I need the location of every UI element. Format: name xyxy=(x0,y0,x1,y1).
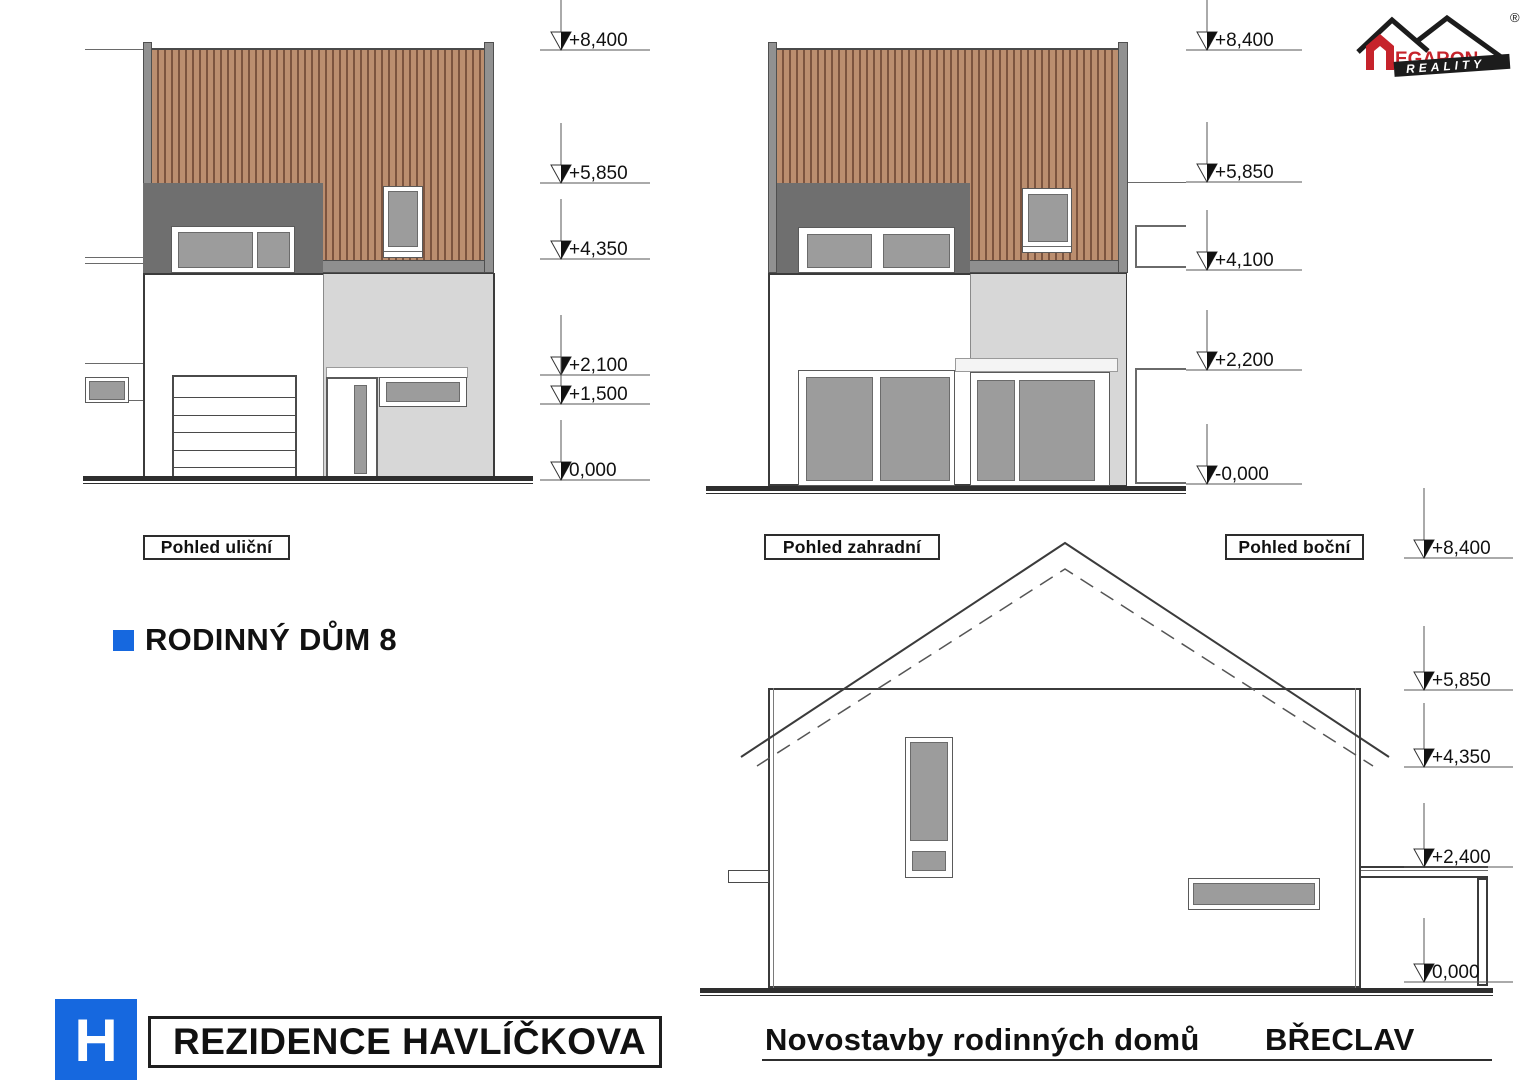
level-marker-value: +4,100 xyxy=(1215,250,1274,271)
level-marker-value: +8,400 xyxy=(569,30,628,51)
project-logo-letter: H xyxy=(74,1006,117,1075)
level-marker-garden-1: +5,850 xyxy=(1186,122,1302,183)
level-marker-value: +4,350 xyxy=(569,239,628,260)
level-marker-value: +5,850 xyxy=(1215,162,1274,183)
level-marker-value: +2,200 xyxy=(1215,350,1274,371)
level-marker-street-1: +5,850 xyxy=(540,123,650,184)
level-marker-garden-2: +4,100 xyxy=(1186,210,1302,271)
level-marker-side-1: +5,850 xyxy=(1404,626,1513,691)
level-marker-street-3: +2,100 xyxy=(540,315,650,376)
level-marker-side-3: +2,400 xyxy=(1404,803,1513,868)
project-name-box: REZIDENCE HAVLÍČKOVA xyxy=(148,1016,662,1068)
level-marker-value: +2,400 xyxy=(1432,847,1491,868)
level-marker-street-2: +4,350 xyxy=(540,199,650,260)
level-marker-street-0: +8,400 xyxy=(540,0,650,51)
project-logo: H xyxy=(55,999,137,1080)
level-marker-value: +8,400 xyxy=(1215,30,1274,51)
project-name-text: REZIDENCE HAVLÍČKOVA xyxy=(173,1021,646,1063)
level-marker-street-5: 0,000 xyxy=(540,420,650,481)
level-marker-garden-3: +2,200 xyxy=(1186,310,1302,371)
level-marker-value: +5,850 xyxy=(1432,670,1491,691)
footer-city: BŘECLAV xyxy=(1265,1022,1415,1058)
level-marker-value: +4,350 xyxy=(1432,747,1491,768)
footer-underline xyxy=(762,1059,1492,1061)
level-marker-value: -0,000 xyxy=(1215,464,1269,485)
level-marker-side-2: +4,350 xyxy=(1404,703,1513,768)
level-marker-value: +8,400 xyxy=(1432,538,1491,559)
level-marker-value: +5,850 xyxy=(569,163,628,184)
level-marker-value: 0,000 xyxy=(1432,962,1480,983)
level-marker-value: +2,100 xyxy=(569,355,628,376)
level-marker-side-4: 0,000 xyxy=(1404,918,1513,983)
level-marker-garden-4: -0,000 xyxy=(1186,424,1302,485)
drawing-sheet: Pohled uliční Pohled zahradní Pohled boč… xyxy=(0,0,1528,1080)
level-markers: +8,400+5,850+4,350+2,100+1,5000,000+8,40… xyxy=(0,0,1528,1080)
level-marker-value: 0,000 xyxy=(569,460,617,481)
level-marker-value: +1,500 xyxy=(569,384,628,405)
level-marker-garden-0: +8,400 xyxy=(1186,0,1302,51)
footer-subtitle: Novostavby rodinných domů xyxy=(765,1022,1200,1058)
level-marker-side-0: +8,400 xyxy=(1404,488,1513,559)
